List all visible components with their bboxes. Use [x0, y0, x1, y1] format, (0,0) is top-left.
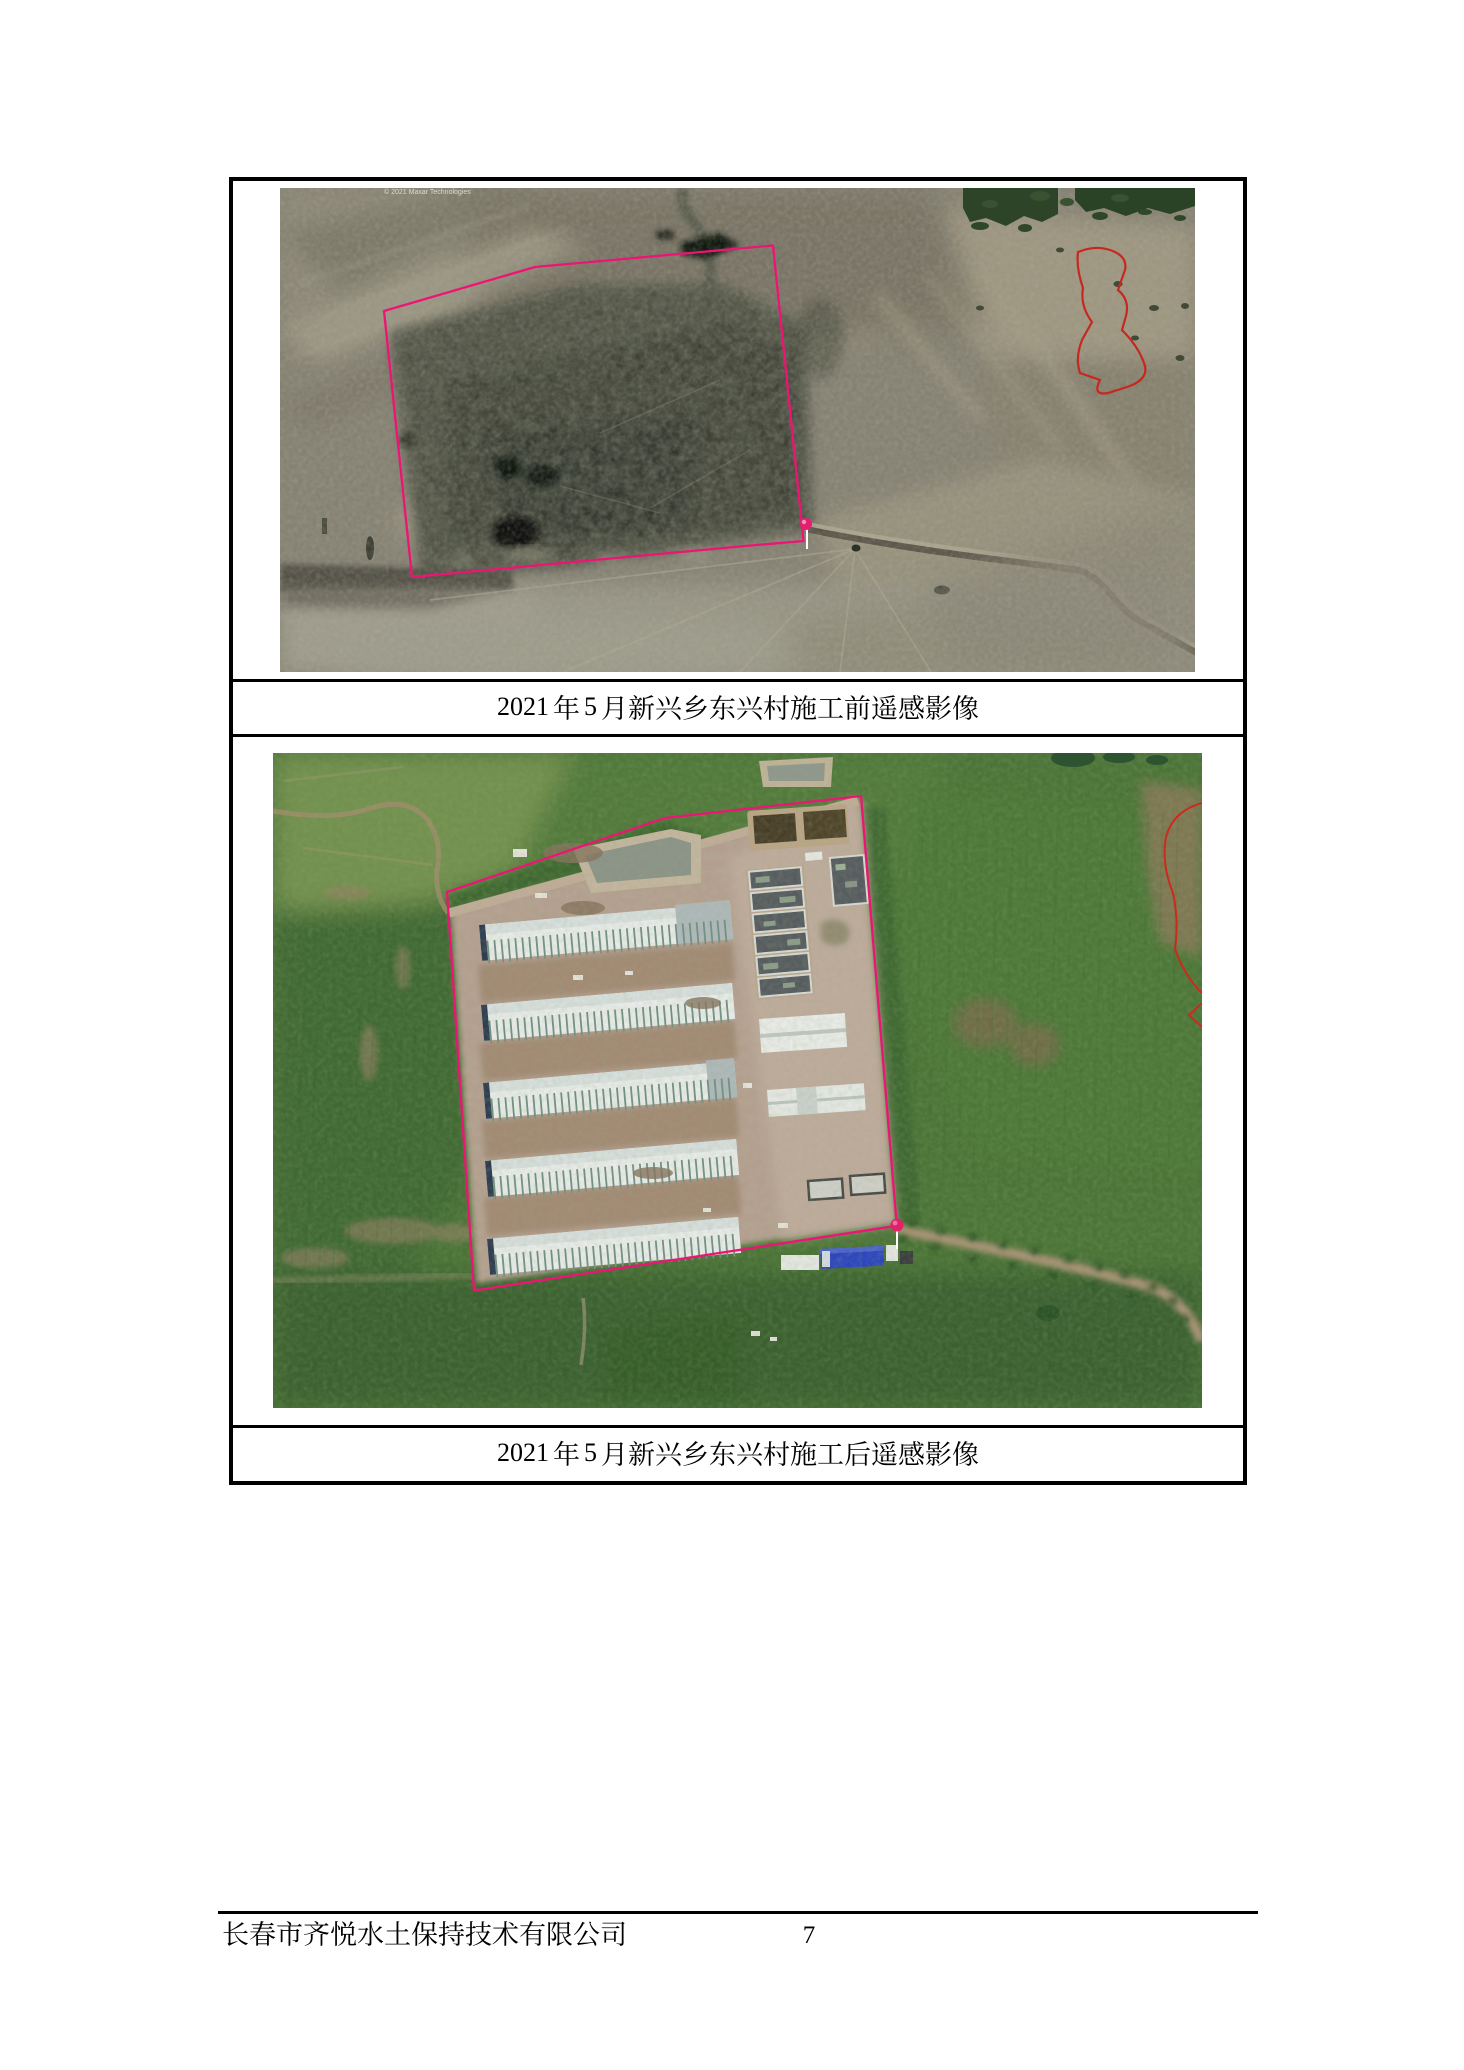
- svg-text:© 2021 Maxar Technologies: © 2021 Maxar Technologies: [384, 188, 471, 196]
